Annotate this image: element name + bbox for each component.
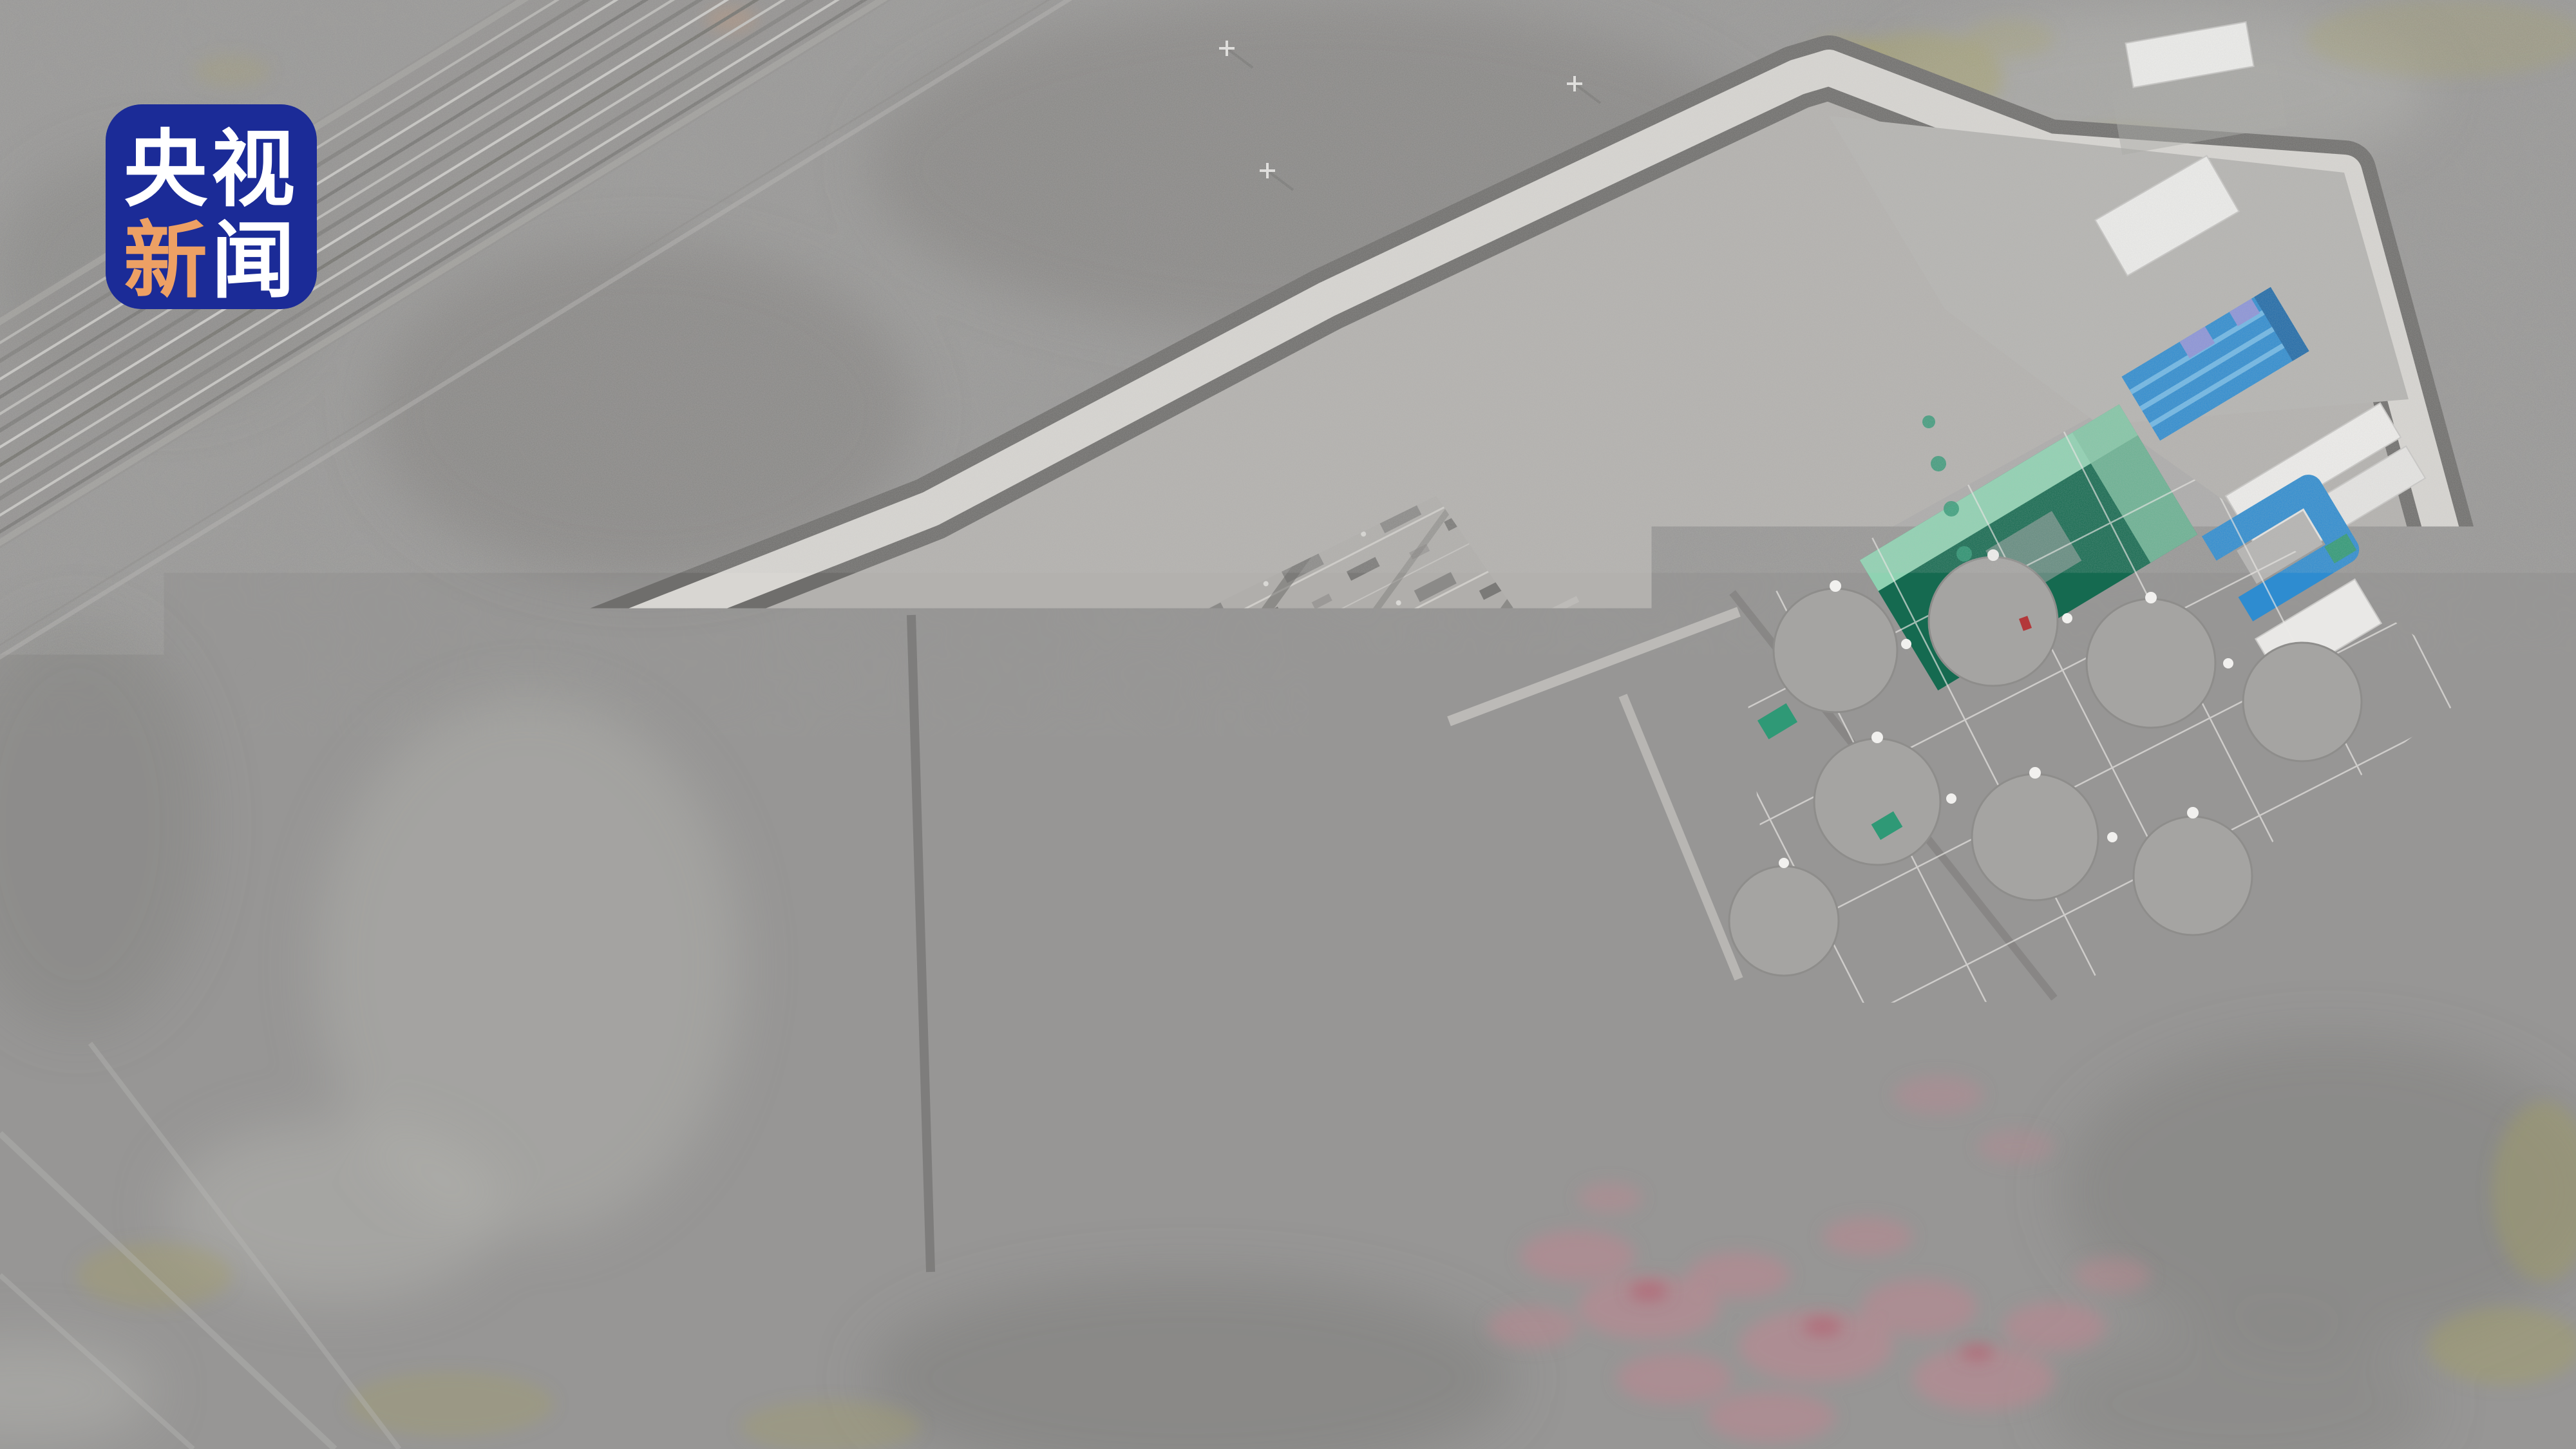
scene-canvas: 央视 新闻 [0, 0, 2576, 1449]
photo-grain [0, 0, 2576, 1449]
logo-text-bottom: 新闻 [124, 214, 299, 308]
aerial-photo: 央视 新闻 [0, 0, 2576, 1449]
logo-char-wen: 闻 [211, 214, 299, 308]
cctv-news-logo: 央视 新闻 [106, 104, 317, 309]
logo-char-xin: 新 [124, 214, 211, 308]
logo-text-top: 央视 [124, 122, 299, 216]
